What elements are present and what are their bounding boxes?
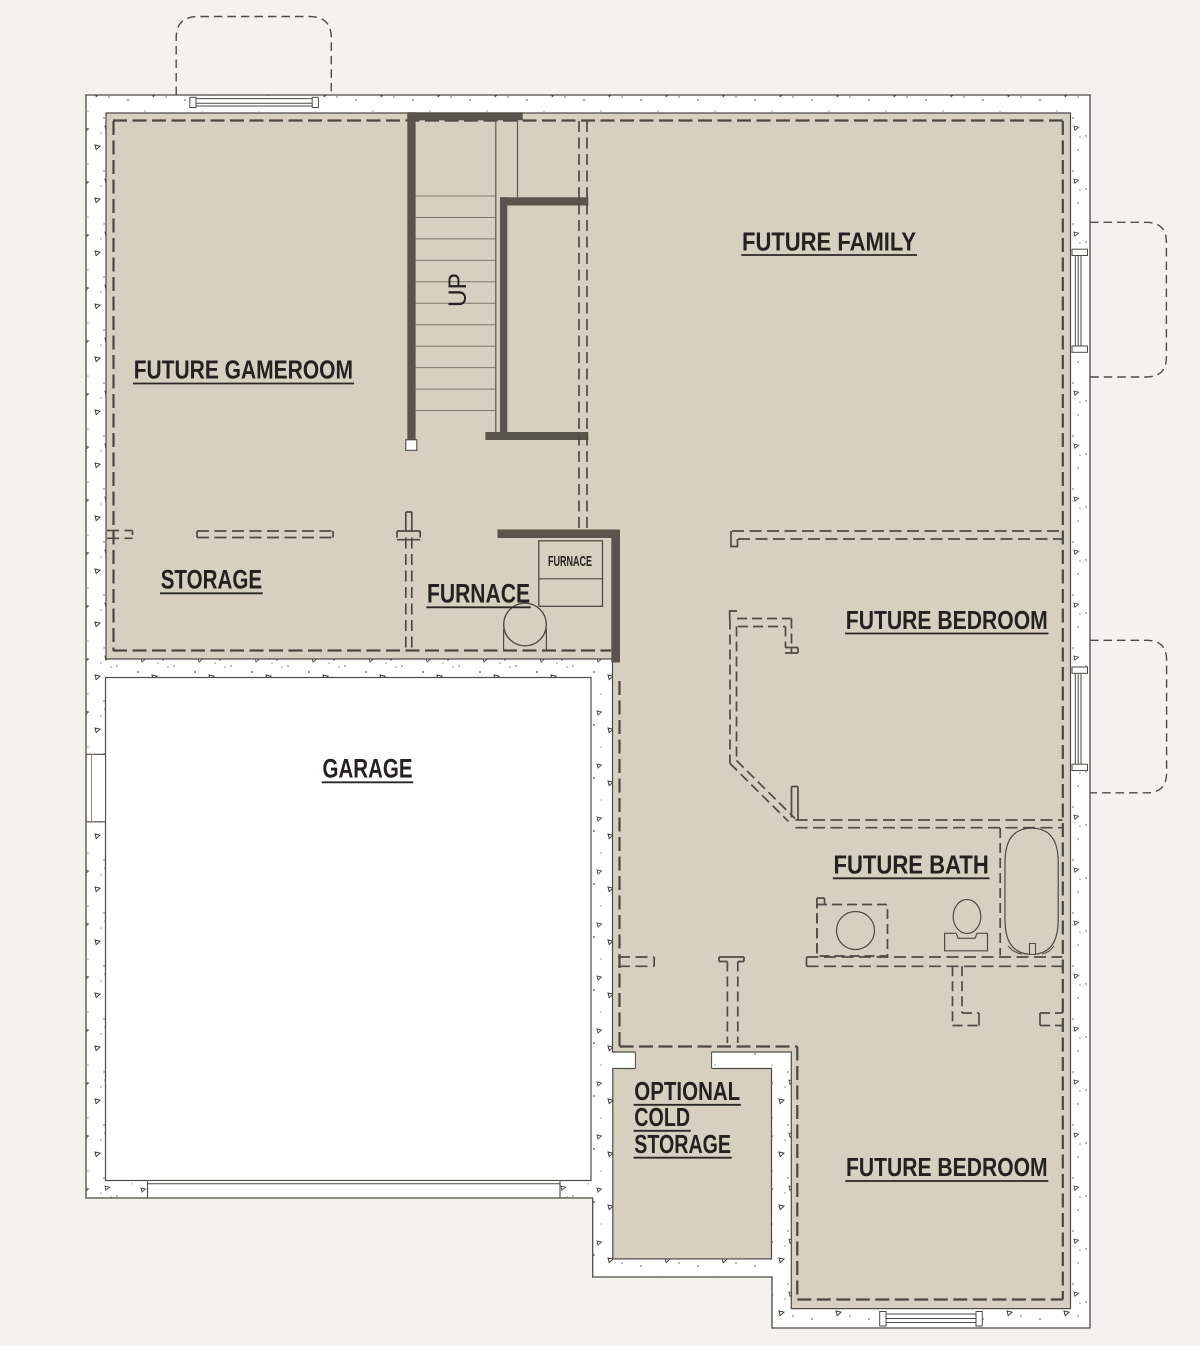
svg-text:STORAGE: STORAGE [161,565,262,595]
svg-text:FUTURE GAMEROOM: FUTURE GAMEROOM [134,355,353,385]
svg-text:COLD: COLD [634,1102,690,1132]
svg-text:FURNACE: FURNACE [548,553,592,570]
svg-text:FUTURE BATH: FUTURE BATH [834,850,989,880]
svg-text:FURNACE: FURNACE [427,579,530,609]
svg-text:FUTURE FAMILY: FUTURE FAMILY [742,226,916,256]
svg-text:FUTURE BEDROOM: FUTURE BEDROOM [846,605,1048,635]
svg-text:FUTURE BEDROOM: FUTURE BEDROOM [846,1152,1048,1182]
svg-text:STORAGE: STORAGE [634,1129,731,1159]
svg-text:GARAGE: GARAGE [323,754,413,784]
svg-text:UP: UP [444,273,472,307]
